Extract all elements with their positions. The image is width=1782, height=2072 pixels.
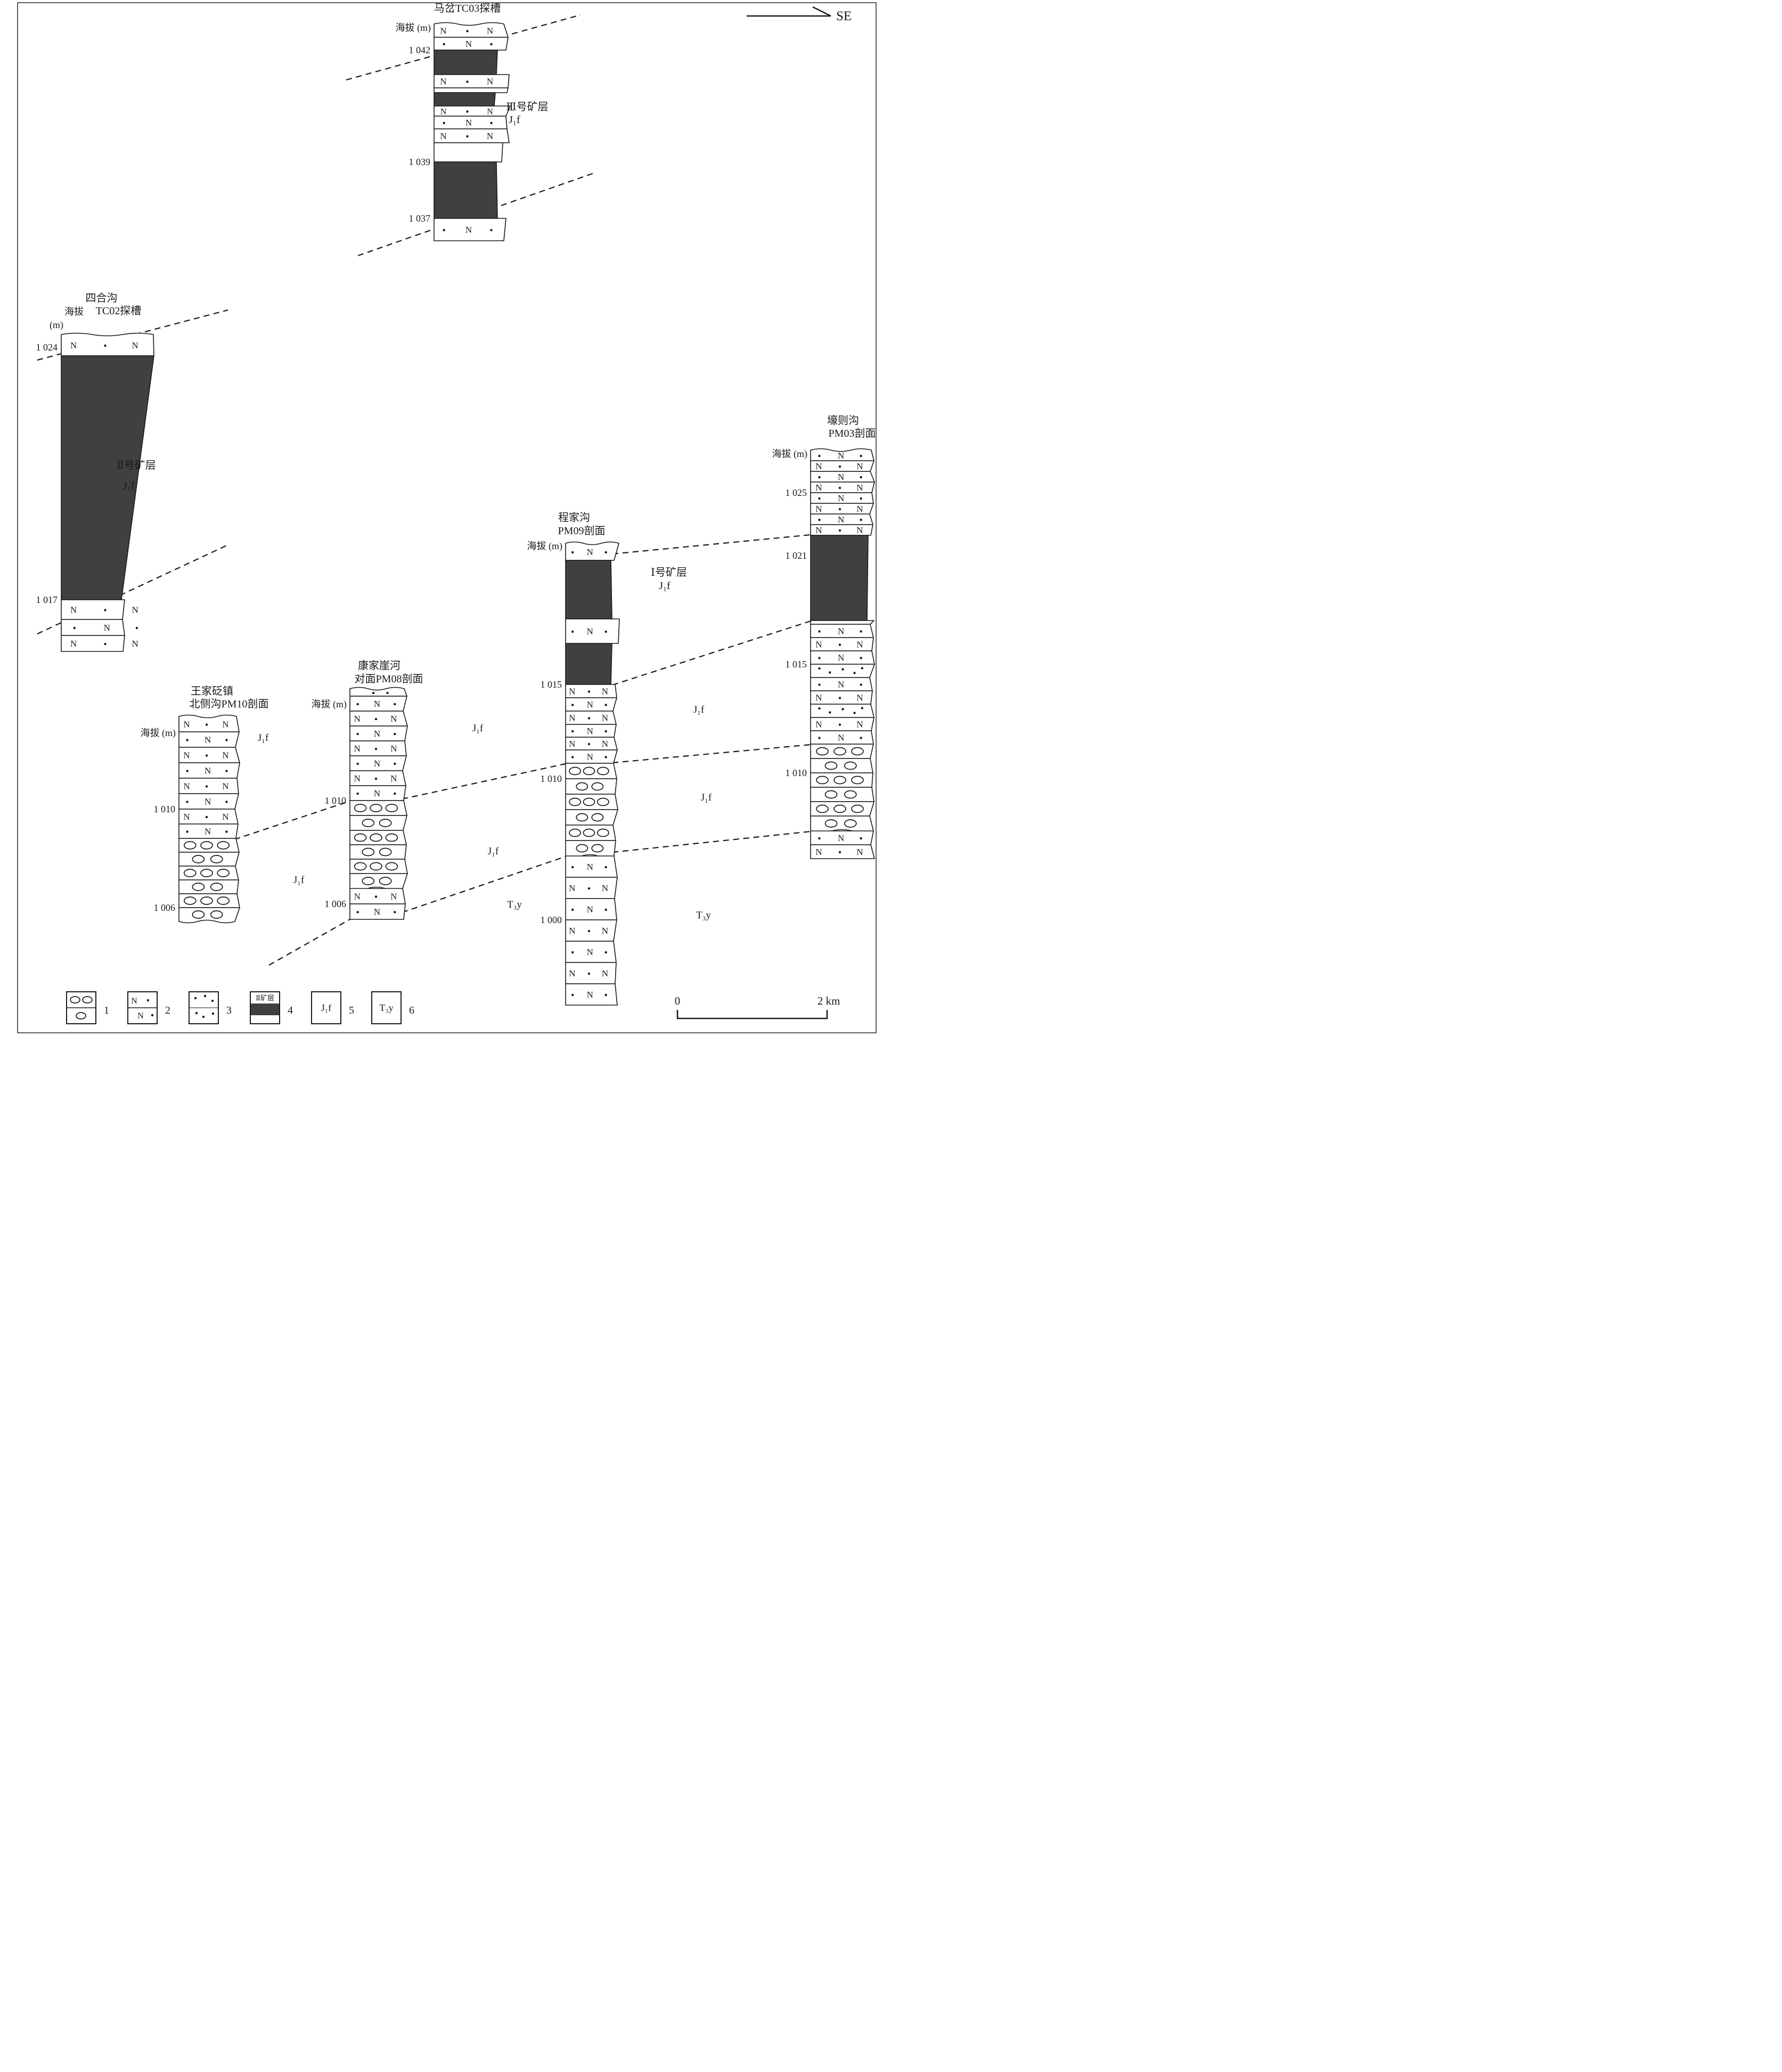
pattern-dot (372, 692, 374, 694)
layer-band-cong2 (179, 908, 240, 923)
layer-band-cong3 (179, 838, 239, 852)
pattern-dot (853, 672, 855, 674)
legend-item-2: NN2 (128, 992, 170, 1024)
pattern-dot (466, 30, 468, 32)
layer-band-ore (61, 356, 154, 600)
pattern-letter: N (205, 735, 211, 745)
pattern-dot (571, 866, 574, 868)
elevation-label: 1 042 (409, 45, 431, 55)
pattern-letter: N (815, 504, 822, 514)
direction-label: SE (836, 9, 852, 23)
pattern-dot (571, 631, 574, 633)
pattern-letter: N (587, 700, 593, 710)
pattern-letter: N (856, 640, 863, 650)
pattern-letter: N (205, 766, 211, 776)
pattern-dot (394, 763, 396, 765)
layer-band-cong2 (179, 880, 239, 894)
pattern-dot (466, 80, 468, 83)
pattern-letter: N (440, 26, 446, 36)
pattern-dot (860, 630, 862, 632)
pattern-dot (839, 466, 841, 468)
elevation-header: 海拔 (m) (527, 541, 563, 552)
layer-band-cong2 (566, 779, 617, 794)
pattern-dot (860, 683, 862, 686)
pattern-letter: N (602, 968, 608, 978)
layer-band-ss2 (61, 619, 125, 635)
pattern-letter: N (838, 733, 844, 743)
pattern-letter: N (838, 680, 844, 690)
pattern-dot (195, 1012, 198, 1014)
legend-number: 4 (288, 1005, 293, 1016)
pattern-dot (604, 704, 607, 706)
pattern-dot (841, 668, 844, 670)
pattern-dot (73, 627, 76, 629)
unit-label: J₁f (123, 480, 135, 492)
pattern-dot (839, 508, 841, 510)
layer-band-cong2 (350, 845, 406, 859)
pattern-letter: N (856, 461, 863, 471)
pattern-dot (147, 999, 149, 1001)
layer-band-cong2 (350, 815, 407, 830)
pattern-dot (443, 122, 445, 124)
legend-number: 5 (349, 1005, 354, 1016)
pattern-dot (839, 723, 841, 725)
layer-band-cong3 (811, 802, 874, 816)
elevation-header: 海拔 (m) (141, 728, 176, 739)
layer-band-cong2 (811, 787, 874, 802)
layer-band-dots (811, 664, 874, 678)
pattern-letter: N (569, 713, 575, 723)
pattern-letter: N (856, 720, 863, 730)
legend-ore-label: Ⅱ矿层 (256, 994, 274, 1002)
elevation-label: 1 000 (541, 915, 562, 925)
pattern-letter: N (374, 758, 380, 769)
se-direction-arrow: SE (747, 7, 852, 23)
column-title: 对面PM08剖面 (355, 673, 423, 685)
pattern-dot (860, 837, 862, 839)
pattern-letter: N (815, 720, 822, 730)
column-title: 四合沟 (86, 292, 118, 304)
elevation-label: 1 010 (541, 773, 562, 784)
column-title: PM03剖面 (829, 427, 876, 439)
pattern-letter: N (487, 108, 493, 117)
pattern-letter: N (569, 968, 575, 978)
pattern-dot (194, 997, 197, 999)
elevation-label: 1 017 (36, 594, 58, 605)
pattern-dot (212, 1013, 214, 1015)
pattern-dot (604, 866, 607, 868)
pattern-letter: N (440, 77, 446, 87)
pattern-dot (818, 497, 820, 500)
layer-band-cong3 (179, 866, 239, 880)
pattern-letter: N (815, 525, 822, 535)
strat-columns: 马岔TC03探槽海拔 (m)NNNNNNNNNNN1 0421 0391 037… (36, 2, 876, 1005)
correlation-line (234, 801, 350, 839)
pattern-letter: N (70, 340, 77, 350)
pattern-dot (860, 737, 862, 739)
pattern-letter: N (205, 797, 211, 807)
unit-label: Ⅱ号矿层 (117, 459, 156, 471)
pattern-dot (571, 551, 574, 553)
elevation-label: 1 025 (786, 487, 807, 498)
correlation-line (612, 621, 811, 685)
pattern-letter: N (354, 773, 361, 784)
pattern-letter: N (587, 547, 593, 557)
pattern-dot (860, 519, 862, 521)
pattern-dot (104, 609, 106, 611)
pattern-letter: N (487, 131, 493, 141)
pattern-letter: N (815, 693, 822, 703)
pattern-letter: N (132, 639, 138, 649)
unit-label: J₁f (472, 723, 484, 734)
pattern-dot (206, 816, 208, 818)
pattern-dot (588, 690, 590, 692)
legend-number: 2 (165, 1005, 170, 1016)
pattern-letter: N (374, 729, 380, 739)
pattern-letter: N (856, 525, 863, 535)
pattern-dot (860, 455, 862, 457)
correlation-line (612, 535, 811, 554)
pattern-dot (829, 711, 831, 713)
column-pm09: 程家沟PM09剖面海拔 (m)NNNNNNNNNNNNNNNNNNNNN1 01… (527, 511, 620, 1005)
pattern-dot (604, 909, 607, 911)
pattern-dot (588, 973, 590, 975)
layer-band-cong2 (350, 874, 407, 890)
pattern-dot (571, 756, 574, 758)
pattern-dot (604, 631, 607, 633)
correlation-line (269, 919, 350, 965)
pattern-dot (860, 497, 862, 500)
unit-label: J₁f (258, 732, 269, 744)
pattern-letter: N (815, 461, 822, 471)
pattern-letter: N (838, 515, 844, 525)
pattern-dot (860, 657, 862, 659)
pattern-dot (604, 551, 607, 553)
pattern-letter: N (465, 118, 472, 128)
pattern-letter: N (487, 26, 493, 36)
unit-label: T₃y (696, 910, 711, 921)
pattern-letter: N (856, 504, 863, 514)
pattern-letter: N (487, 77, 493, 87)
pattern-dot (841, 708, 844, 710)
column-pm10: 王家砭镇北侧沟PM10剖面海拔 (m)NNNNNNNNNNNN1 0101 00… (141, 685, 269, 923)
pattern-dot (818, 737, 820, 739)
pattern-dot (571, 704, 574, 706)
legend-item-6: T₃y6 (372, 992, 414, 1024)
pattern-dot (853, 712, 855, 714)
pattern-letter: N (222, 720, 228, 730)
correlation-line (612, 831, 811, 852)
pattern-letter: N (374, 699, 380, 709)
pattern-dot (861, 667, 863, 669)
pattern-dot (839, 529, 841, 532)
pattern-dot (818, 630, 820, 632)
layer-band-dots (811, 704, 874, 717)
pattern-letter: N (222, 781, 228, 792)
elevation-header: 海拔 (m) (312, 699, 347, 710)
pattern-dot (490, 229, 492, 231)
column-title: 王家砭镇 (191, 685, 233, 697)
pattern-letter: N (569, 926, 575, 936)
layer-band-cong3 (350, 801, 407, 815)
pattern-letter: N (465, 225, 472, 235)
pattern-letter: N (838, 833, 844, 843)
column-title: TC02探槽 (96, 305, 142, 317)
layer-band-blank (811, 621, 874, 624)
layer-band-cong3 (350, 859, 407, 874)
pattern-dot (443, 229, 445, 231)
layer-band-cong2 (566, 841, 616, 858)
pattern-dot (186, 830, 188, 833)
pattern-dot (818, 707, 820, 709)
pattern-letter: N (104, 623, 110, 633)
legend-unit-label: T₃y (379, 1002, 393, 1013)
legend-item-3: 3 (189, 992, 232, 1024)
layer-band-cong3 (811, 744, 873, 758)
pattern-letter: N (354, 714, 361, 724)
pattern-dot (394, 793, 396, 795)
pattern-dot (204, 995, 206, 997)
pattern-dot (186, 801, 188, 803)
pattern-dot (571, 994, 574, 996)
pattern-letter: N (838, 626, 844, 637)
layer-band-ore (566, 560, 612, 619)
scale-start-label: 0 (675, 994, 681, 1007)
unit-label: Ⅰ号矿层 (651, 566, 687, 578)
unit-label: (m) (50, 320, 63, 331)
pattern-letter: N (569, 883, 575, 893)
layer-band-blank (434, 143, 503, 162)
layer-band-cong2 (811, 816, 873, 833)
pattern-dot (394, 733, 396, 735)
pattern-letter: N (815, 847, 822, 857)
column-title: 壕则沟 (827, 414, 859, 427)
pattern-dot (357, 793, 359, 795)
pattern-dot (225, 801, 227, 803)
layer-band-cong3 (179, 894, 240, 908)
pattern-letter: N (587, 947, 593, 957)
elevation-header: 海拔 (m) (772, 448, 808, 460)
correlation-line (612, 745, 811, 763)
pattern-dot (818, 667, 820, 670)
pattern-dot (375, 718, 377, 720)
pattern-letter: N (569, 687, 575, 697)
layer-band-ore (434, 93, 495, 106)
pattern-dot (604, 730, 607, 732)
elevation-label: 1 006 (154, 902, 176, 913)
pattern-dot (225, 770, 227, 772)
pattern-dot (571, 909, 574, 911)
layer-band-cong2 (179, 852, 239, 866)
pattern-dot (818, 476, 820, 478)
unit-label: J₁f (693, 704, 705, 715)
pattern-letter: N (587, 862, 593, 872)
elevation-label: 1 024 (36, 342, 58, 353)
pattern-letter: N (183, 751, 190, 761)
pattern-dot (104, 643, 106, 645)
pattern-letter: N (587, 990, 593, 1000)
pattern-letter: N (390, 773, 397, 784)
pattern-letter: N (815, 640, 822, 650)
pattern-dot (466, 135, 468, 137)
layer-band-cong3 (566, 794, 618, 810)
pattern-letter: N (222, 751, 228, 761)
pattern-dot (588, 743, 590, 745)
pattern-dot (861, 707, 863, 709)
scale-end-label: 2 km (818, 994, 840, 1007)
stratigraphic-correlation-figure: 马岔TC03探槽海拔 (m)NNNNNNNNNNN1 0421 0391 037… (0, 0, 891, 1036)
legend-item-4: Ⅱ矿层4 (250, 992, 293, 1024)
pattern-letter: N (183, 781, 190, 792)
pattern-dot (490, 43, 492, 45)
unit-label: J₁f (701, 792, 712, 803)
pattern-dot (604, 756, 607, 758)
layer-band-cong2 (811, 758, 873, 773)
legend-number: 3 (226, 1005, 232, 1016)
pattern-dot (206, 785, 208, 787)
pattern-dot (571, 730, 574, 732)
pattern-letter: N (602, 739, 608, 749)
column-title: 北侧沟PM10剖面 (190, 698, 269, 710)
pattern-letter: N (374, 788, 380, 798)
layer-band-blank (434, 88, 508, 93)
elevation-label: 1 006 (325, 899, 347, 909)
pattern-letter: N (132, 605, 138, 615)
elevation-label: 1 015 (786, 659, 807, 670)
pattern-dot (104, 345, 106, 347)
unit-label: J₁f (293, 875, 305, 886)
column-pm03: 壕则沟PM03剖面海拔 (m)NNNNNNNNNNNNNNNNNNNNNNNNN… (772, 414, 876, 859)
pattern-letter: N (440, 131, 446, 141)
pattern-letter: N (602, 883, 608, 893)
pattern-letter: N (587, 752, 593, 762)
pattern-letter: N (390, 892, 397, 902)
legend-ore-band (251, 1004, 279, 1015)
pattern-dot (394, 703, 396, 705)
elevation-label: 1 021 (786, 550, 807, 561)
pattern-dot (375, 895, 377, 898)
pattern-dot (604, 994, 607, 996)
pattern-letter: N (587, 626, 593, 637)
pattern-letter: N (131, 997, 137, 1006)
layer-band-ore (434, 50, 497, 75)
column-tc02: 四合沟TC02探槽NNNNNNN1 0241 017 (36, 292, 154, 651)
pattern-letter: N (70, 605, 77, 615)
pattern-letter: N (222, 812, 228, 822)
pattern-dot (206, 723, 208, 725)
layer-band-ore (434, 162, 497, 218)
pattern-letter: N (374, 907, 380, 917)
column-title: PM09剖面 (558, 525, 606, 537)
pattern-dot (136, 627, 138, 629)
pattern-dot (151, 1014, 153, 1016)
column-pm08: 康家崖河对面PM08剖面海拔 (m)NNNNNNNNNNNNN1 0101 00… (312, 659, 423, 919)
pattern-dot (839, 851, 841, 853)
pattern-letter: N (569, 739, 575, 749)
legend-unit-label: J₁f (321, 1002, 331, 1013)
pattern-dot (386, 692, 388, 694)
layer-band-ore (811, 535, 868, 621)
legend-number: 1 (104, 1005, 109, 1016)
pattern-letter: N (602, 687, 608, 697)
pattern-dot (588, 717, 590, 719)
unit-label: J₁f (488, 846, 499, 857)
pattern-dot (202, 1016, 205, 1018)
pattern-letter: N (856, 847, 863, 857)
legend-item-5: J₁f5 (312, 992, 354, 1024)
pattern-dot (375, 778, 377, 780)
scale-bar: 0 2 km (675, 994, 840, 1018)
unit-label: Ⅲ号矿层 (506, 101, 548, 113)
pattern-dot (829, 671, 831, 673)
legend-number: 6 (409, 1005, 414, 1016)
pattern-letter: N (183, 812, 190, 822)
column-title: 程家沟 (558, 511, 590, 524)
elevation-label: 1 039 (409, 157, 431, 167)
pattern-dot (818, 519, 820, 521)
unit-label: 海拔 (64, 306, 84, 317)
legend-item-1: 1 (67, 992, 109, 1024)
pattern-dot (206, 754, 208, 756)
pattern-letter: N (205, 827, 211, 837)
elevation-label: 1 037 (409, 213, 431, 224)
pattern-letter: N (838, 653, 844, 663)
pattern-letter: N (838, 493, 844, 503)
pattern-letter: N (70, 639, 77, 649)
pattern-dot (357, 911, 359, 913)
layer-band-ore (566, 643, 612, 684)
pattern-dot (860, 476, 862, 478)
pattern-dot (571, 951, 574, 953)
unit-label: J₁f (659, 580, 671, 592)
arrow-barb (813, 7, 831, 16)
pattern-dot (225, 739, 227, 741)
pattern-dot (357, 763, 359, 765)
pattern-letter: N (354, 892, 361, 902)
pattern-dot (839, 487, 841, 489)
pattern-letter: N (838, 451, 844, 461)
column-tc03: 马岔TC03探槽海拔 (m)NNNNNNNNNNN1 0421 0391 037 (396, 2, 511, 241)
pattern-dot (211, 1000, 214, 1002)
pattern-letter: N (132, 340, 138, 350)
elevation-label: 1 015 (541, 679, 562, 690)
pattern-dot (818, 683, 820, 686)
pattern-dot (818, 837, 820, 839)
pattern-dot (443, 43, 445, 45)
pattern-dot (186, 739, 188, 741)
elevation-header: 海拔 (m) (396, 22, 431, 34)
pattern-dot (225, 830, 227, 833)
pattern-letter: N (390, 714, 397, 724)
pattern-dot (394, 911, 396, 913)
unit-label: T₃y (507, 899, 522, 910)
pattern-letter: N (838, 472, 844, 482)
pattern-letter: N (137, 1011, 144, 1021)
pattern-letter: N (815, 483, 822, 493)
pattern-dot (375, 748, 377, 750)
correlation-line (402, 856, 566, 912)
column-title: 康家崖河 (358, 659, 400, 672)
legend: 1NN23Ⅱ矿层4J₁f5T₃y6 (67, 992, 414, 1024)
pattern-dot (839, 697, 841, 699)
elevation-label: 1 010 (325, 795, 347, 806)
pattern-letter: N (465, 39, 472, 49)
unit-label: J₁f (509, 114, 520, 126)
pattern-dot (588, 887, 590, 890)
pattern-dot (466, 110, 468, 112)
pattern-letter: N (587, 726, 593, 736)
layer-band-dots2 (350, 688, 407, 697)
